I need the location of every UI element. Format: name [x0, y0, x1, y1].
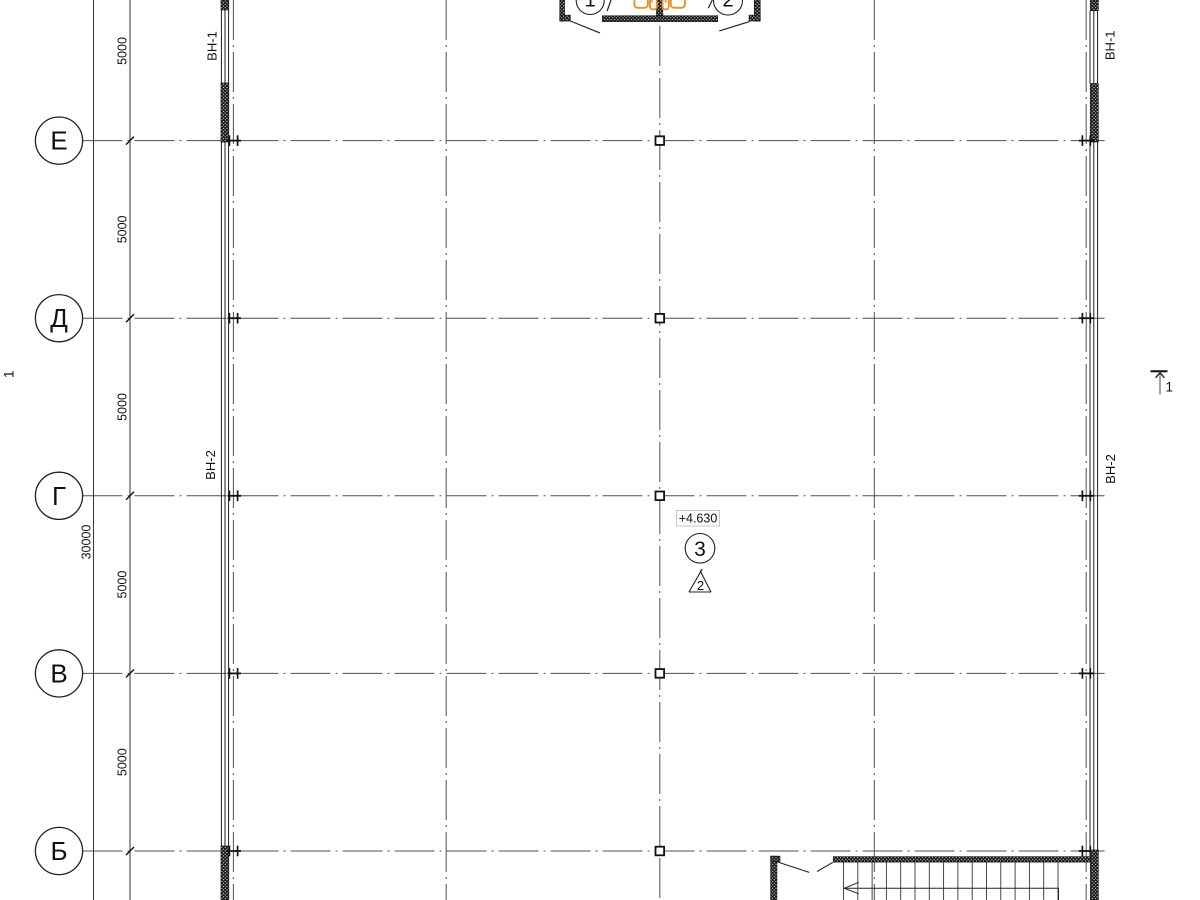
svg-text:5000: 5000: [116, 571, 130, 599]
svg-text:5000: 5000: [116, 215, 130, 243]
svg-text:ВН-2: ВН-2: [1103, 454, 1118, 484]
svg-text:1: 1: [1166, 380, 1174, 395]
svg-text:5000: 5000: [116, 393, 130, 421]
svg-text:Д: Д: [50, 303, 68, 333]
svg-text:ВН-2: ВН-2: [203, 450, 218, 480]
svg-text:2: 2: [722, 0, 733, 12]
svg-text:ВН-1: ВН-1: [204, 31, 219, 61]
svg-text:ВН-1: ВН-1: [1103, 30, 1118, 60]
svg-text:Е: Е: [50, 126, 67, 156]
svg-text:30000: 30000: [79, 525, 93, 560]
svg-text:В: В: [50, 658, 67, 688]
svg-text:5000: 5000: [116, 748, 130, 776]
svg-text:1: 1: [2, 370, 17, 378]
svg-text:1: 1: [585, 0, 596, 12]
svg-text:Б: Б: [50, 836, 67, 866]
svg-text:3: 3: [694, 538, 706, 561]
svg-text:Г: Г: [52, 481, 66, 511]
svg-text:2: 2: [697, 578, 704, 593]
svg-text:5000: 5000: [116, 37, 130, 65]
svg-text:+4.630: +4.630: [679, 512, 718, 526]
